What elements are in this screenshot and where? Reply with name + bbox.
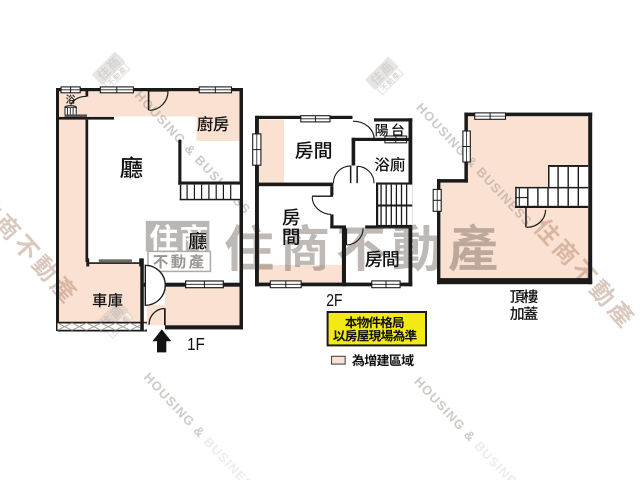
svg-text:2F: 2F: [326, 290, 342, 310]
svg-text:1F: 1F: [187, 334, 205, 354]
